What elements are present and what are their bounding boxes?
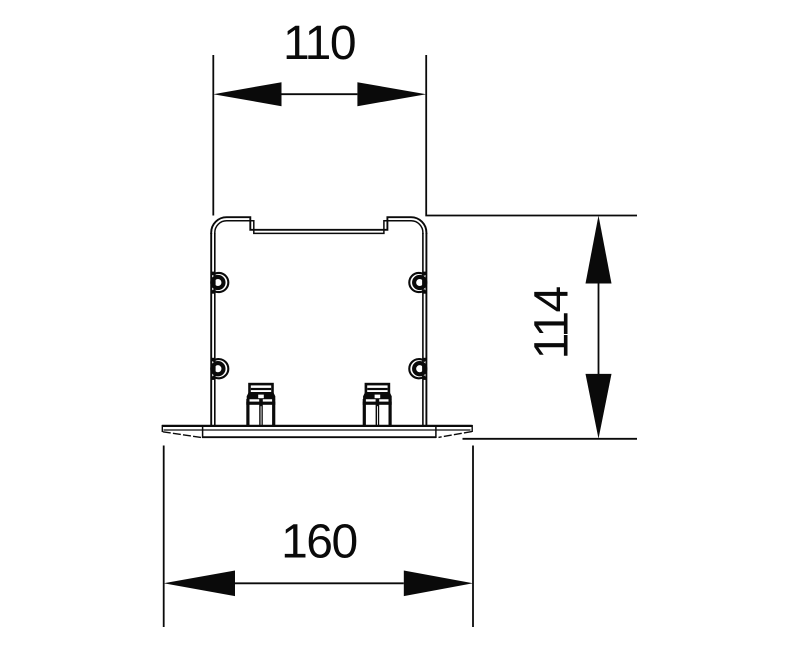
svg-text:160: 160 — [281, 516, 357, 569]
svg-text:110: 110 — [283, 17, 355, 70]
svg-text:114: 114 — [526, 286, 579, 359]
